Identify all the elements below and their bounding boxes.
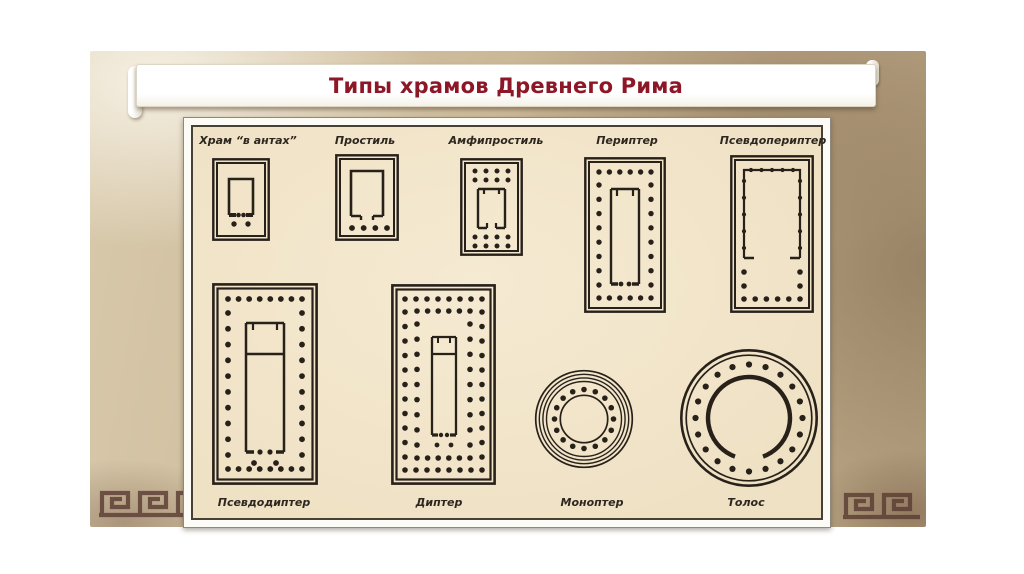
plan-drawing-tolos [679, 348, 819, 488]
plan-label-psevdoperipter: Псевдопериптер [710, 134, 836, 148]
plan-label-prostil: Простиль [315, 134, 415, 148]
plan-label-dipter: Диптер [389, 496, 489, 510]
plan-drawing-khram-v-antakh [212, 158, 270, 241]
title-banner: Типы храмов Древнего Рима [136, 64, 876, 107]
plan-label-amfiprostil: Амфипростиль [434, 134, 558, 148]
plan-label-peripter: Периптер [565, 134, 689, 148]
plan-label-khram-v-antakh: Храм “в антах” [195, 134, 301, 148]
plan-drawing-psevdodipter [212, 283, 318, 485]
plan-label-monopter: Моноптер [542, 496, 642, 510]
greek-key-ornament-right [842, 486, 926, 524]
slide-title: Типы храмов Древнего Рима [329, 74, 683, 98]
diagram-panel: Храм “в антах” Простиль Амфипростиль Пер… [183, 117, 831, 528]
plan-drawing-amfiprostil [460, 158, 523, 256]
plan-label-tolos: Толос [696, 496, 796, 510]
plan-label-psevdodipter: Псевдодиптер [204, 496, 324, 510]
diagram-panel-inner: Храм “в антах” Простиль Амфипростиль Пер… [191, 125, 823, 520]
plan-drawing-prostil [335, 154, 399, 241]
plan-drawing-peripter [584, 157, 666, 313]
plan-drawing-dipter [391, 284, 496, 485]
slide-stage: Типы храмов Древнего Рима Храм “в антах”… [0, 0, 1024, 574]
plan-drawing-monopter [534, 369, 634, 469]
plan-drawing-psevdoperipter [730, 155, 814, 313]
